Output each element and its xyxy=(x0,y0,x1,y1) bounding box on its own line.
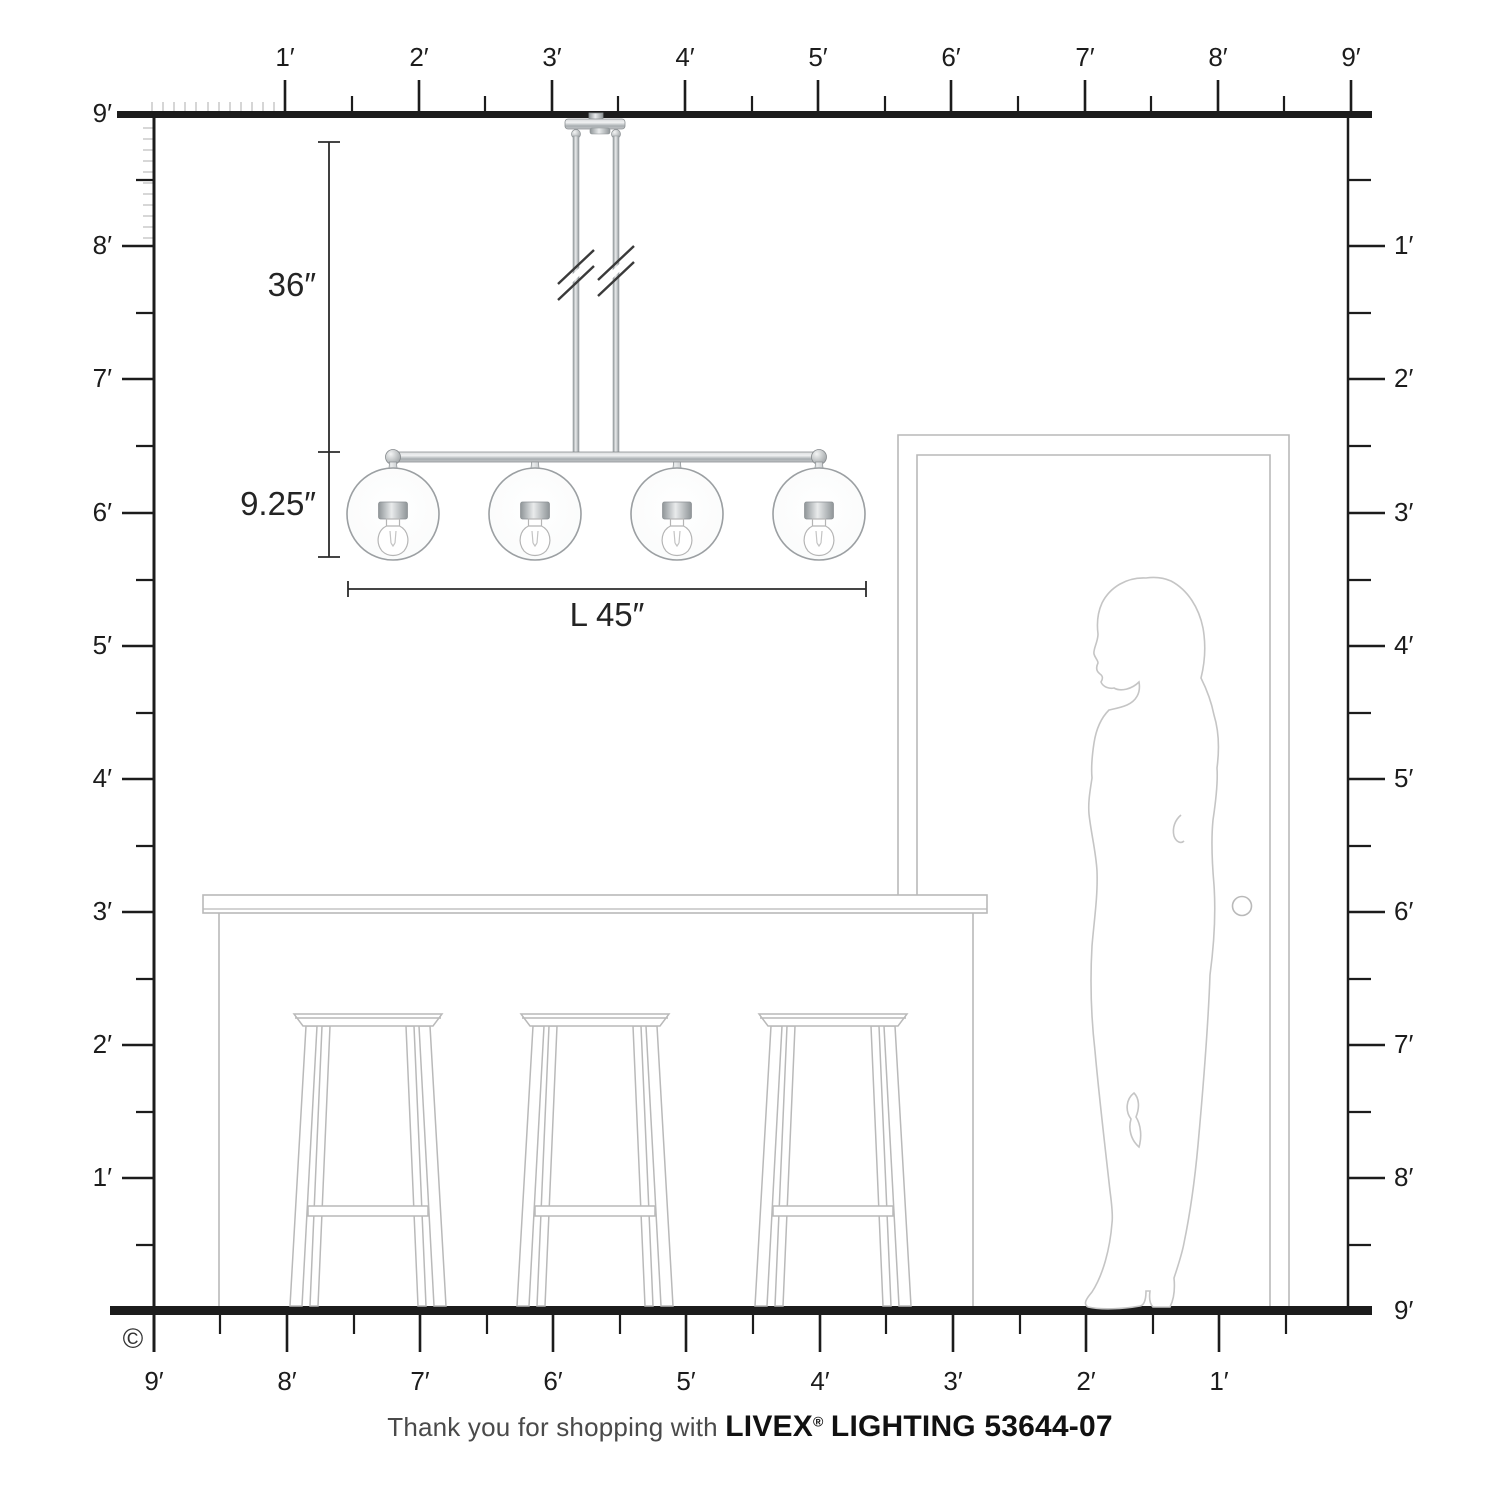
product-number: LIGHTING 53644-07 xyxy=(831,1410,1113,1443)
ruler-label: 8′ xyxy=(93,230,112,260)
scale-drawing-page: 1′ 2′ 3′ 4′ 5′ 6′ 7′ 8′ 9′ 9′ 8′ 7′ 6′ 5… xyxy=(0,0,1500,1500)
ruler-label: 4′ xyxy=(675,42,694,72)
ruler-label: 2′ xyxy=(1394,363,1413,393)
island-base-fill xyxy=(219,913,973,1306)
ruler-label: 9′ xyxy=(144,1366,163,1396)
vertical-dimension-line xyxy=(318,142,340,557)
pendant-shades xyxy=(347,462,865,560)
ruler-label: 6′ xyxy=(941,42,960,72)
pendant xyxy=(489,462,581,560)
ruler-label: 8′ xyxy=(1394,1162,1413,1192)
ruler-label: 1′ xyxy=(1394,230,1413,260)
ruler-label: 5′ xyxy=(93,630,112,660)
island-countertop xyxy=(203,895,987,913)
fixture-height-dimension: 9.25″ xyxy=(240,485,316,522)
pendant xyxy=(347,462,439,560)
rod-break-marks xyxy=(558,246,634,300)
ruler-label: 7′ xyxy=(1394,1029,1413,1059)
ruler-label: 9′ xyxy=(1394,1295,1413,1325)
socket-ring xyxy=(663,502,692,519)
ruler-label: 7′ xyxy=(410,1366,429,1396)
ruler-label: 3′ xyxy=(93,896,112,926)
copyright-symbol: © xyxy=(123,1323,144,1354)
ceiling-canopy xyxy=(565,119,625,129)
brand-name: LIVEX xyxy=(725,1410,813,1443)
floor-line xyxy=(110,1306,1372,1315)
socket-ring xyxy=(379,502,408,519)
footer: Thank you for shopping with LIVEX® LIGHT… xyxy=(0,1410,1500,1444)
ruler-label: 8′ xyxy=(277,1366,296,1396)
ruler-label: 1′ xyxy=(93,1162,112,1192)
length-dimension-line xyxy=(348,581,866,597)
ruler-label: 9′ xyxy=(93,98,112,128)
ruler-label: 7′ xyxy=(93,363,112,393)
person-outline xyxy=(1085,577,1218,1308)
ruler-label: 3′ xyxy=(542,42,561,72)
canopy-hub xyxy=(590,128,610,134)
ruler-label: 9′ xyxy=(1341,42,1360,72)
ruler-label: 4′ xyxy=(1394,630,1413,660)
ruler-label: 5′ xyxy=(808,42,827,72)
dimension-annotations: 36″ 9.25″ L 45″ xyxy=(240,142,866,633)
socket-ring xyxy=(521,502,550,519)
person-silhouette xyxy=(1085,577,1218,1308)
ruler-label: 4′ xyxy=(810,1366,829,1396)
fixture-bar xyxy=(390,452,822,462)
fixture-length-dimension: L 45″ xyxy=(570,596,645,633)
downrod xyxy=(573,136,579,458)
door-knob xyxy=(1233,897,1252,916)
ruler-label: 4′ xyxy=(93,763,112,793)
ruler-label: 1′ xyxy=(275,42,294,72)
ruler-label: 6′ xyxy=(543,1366,562,1396)
footer-thank-you-text: Thank you for shopping with xyxy=(387,1412,718,1442)
ruler-label: 6′ xyxy=(93,497,112,527)
socket-ring xyxy=(805,502,834,519)
pendant xyxy=(773,462,865,560)
ruler-label: 2′ xyxy=(93,1029,112,1059)
registered-trademark-symbol: ® xyxy=(813,1413,824,1429)
pendant xyxy=(631,462,723,560)
ruler-label: 2′ xyxy=(409,42,428,72)
ceiling-line xyxy=(117,111,1372,118)
ruler-label: 5′ xyxy=(1394,763,1413,793)
room-scale-diagram: 1′ 2′ 3′ 4′ 5′ 6′ 7′ 8′ 9′ 9′ 8′ 7′ 6′ 5… xyxy=(0,0,1500,1500)
ruler-label: 5′ xyxy=(676,1366,695,1396)
rod-drop-dimension: 36″ xyxy=(268,266,317,303)
ruler-label: 6′ xyxy=(1394,896,1413,926)
ruler-label: 7′ xyxy=(1075,42,1094,72)
linear-chandelier xyxy=(347,113,865,560)
ruler-label: 1′ xyxy=(1209,1366,1228,1396)
ruler-label: 8′ xyxy=(1208,42,1227,72)
ruler-label: 3′ xyxy=(1394,497,1413,527)
ruler-label: 3′ xyxy=(943,1366,962,1396)
ruler-label: 2′ xyxy=(1076,1366,1095,1396)
downrod xyxy=(613,136,619,458)
